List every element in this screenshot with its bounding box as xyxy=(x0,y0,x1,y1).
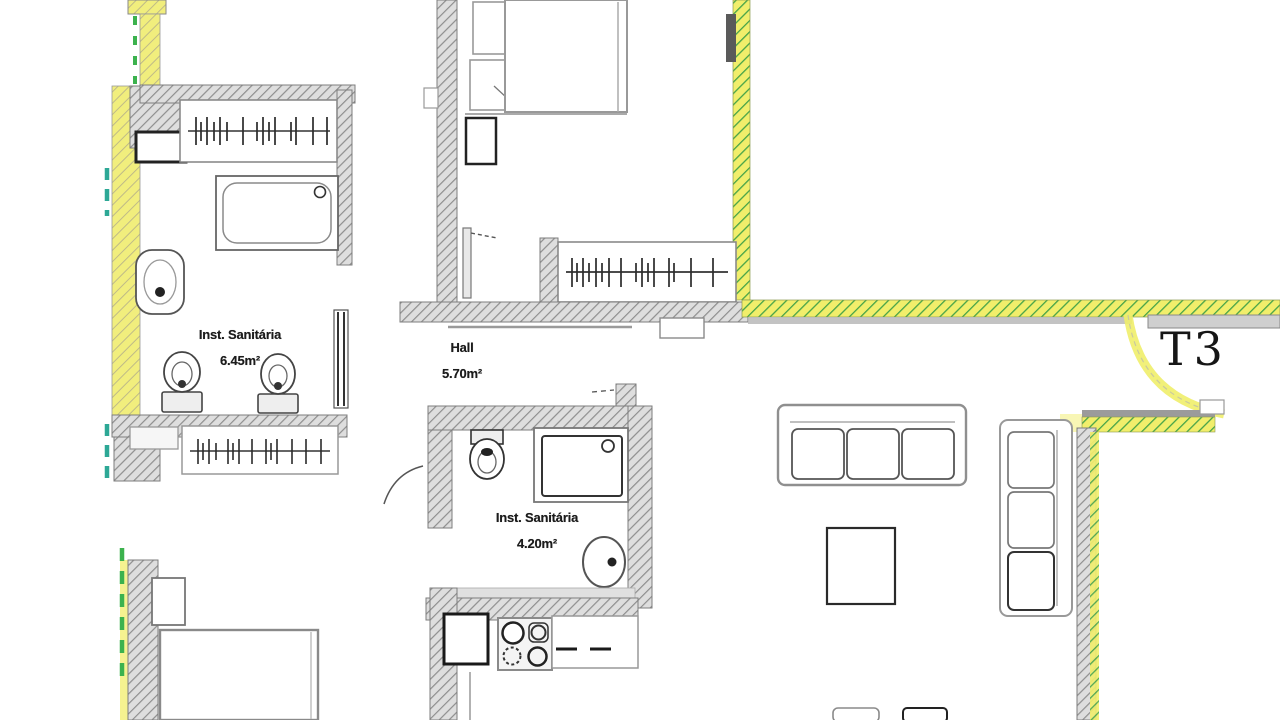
room-label-inst-sanitaria-2: Inst. Sanitária 4.20m² xyxy=(462,510,612,553)
bedroom-bottom xyxy=(152,578,318,720)
nightstand xyxy=(473,2,507,54)
wall xyxy=(428,406,652,430)
washbasin xyxy=(136,250,184,314)
stove-4-burners xyxy=(498,618,552,670)
right-walls xyxy=(1060,400,1224,720)
room-name: Inst. Sanitária xyxy=(496,510,578,525)
room-area: 5.70m² xyxy=(402,366,522,383)
door-jamb xyxy=(1200,400,1224,414)
bedroom-closet xyxy=(130,426,338,474)
nightstand xyxy=(470,60,508,110)
cabinet xyxy=(130,427,178,449)
kitchen-sink xyxy=(444,614,488,664)
step xyxy=(660,318,704,338)
bathtub xyxy=(216,176,338,250)
dining-chair xyxy=(903,708,947,720)
sofa-3-seat-vertical xyxy=(1000,420,1072,616)
room-name: Inst. Sanitária xyxy=(199,327,281,342)
plan-type-label: T3 xyxy=(1160,326,1226,372)
dining-chair xyxy=(833,708,879,720)
hall-door xyxy=(463,228,497,298)
room-label-inst-sanitaria-1: Inst. Sanitária 6.45m² xyxy=(170,327,310,370)
threshold xyxy=(437,588,635,598)
floor-plan: Inst. Sanitária 6.45m² Hall 5.70m² Inst.… xyxy=(0,0,1280,720)
door-jamb xyxy=(424,88,438,108)
room-area: 4.20m² xyxy=(462,536,612,553)
nightstand xyxy=(152,578,185,625)
sofa-3-seat-horizontal xyxy=(778,405,966,485)
room-name: Hall xyxy=(450,340,473,355)
wall-column xyxy=(726,14,736,62)
wall-cabinet xyxy=(136,132,186,162)
shower-tray xyxy=(534,428,628,502)
kitchen xyxy=(426,588,638,720)
wall xyxy=(628,406,652,608)
interior-door-leaf xyxy=(463,228,471,298)
room-label-hall: Hall 5.70m² xyxy=(402,340,522,383)
towel-radiator xyxy=(334,310,348,408)
square-table xyxy=(827,528,895,604)
door-swing xyxy=(384,466,423,504)
bathroom-2 xyxy=(384,384,652,608)
wall xyxy=(428,430,452,528)
wall-hung-toilet xyxy=(470,430,504,479)
wall xyxy=(437,0,457,312)
room-area: 6.45m² xyxy=(170,353,310,370)
bed-bottom xyxy=(160,630,318,720)
wall xyxy=(337,90,352,265)
wardrobe-hangers xyxy=(180,100,337,162)
double-bed xyxy=(505,0,627,112)
kitchen-counter xyxy=(552,616,638,668)
living-room xyxy=(778,405,1072,720)
nightstand xyxy=(466,118,496,164)
